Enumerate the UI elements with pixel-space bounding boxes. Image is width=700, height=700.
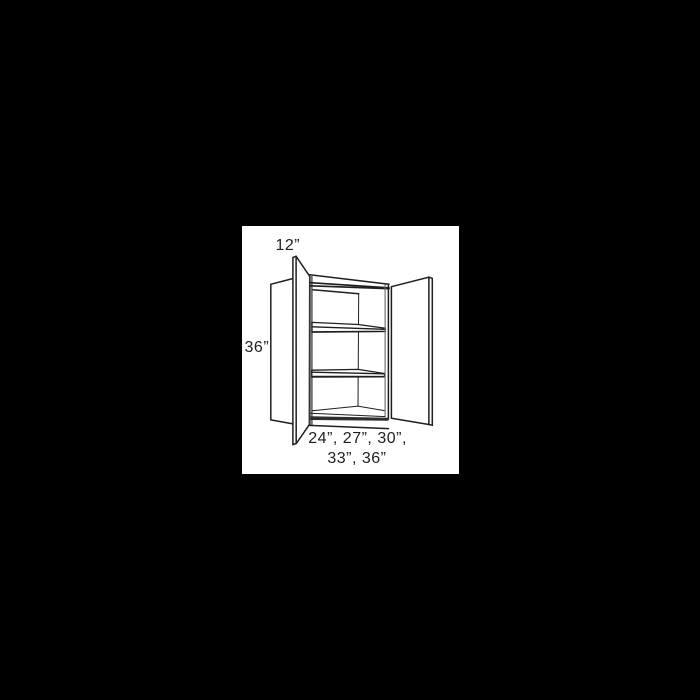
svg-text:24”, 27”, 30”,: 24”, 27”, 30”, <box>308 430 407 447</box>
svg-text:12”: 12” <box>275 237 300 254</box>
svg-text:33”, 36”: 33”, 36” <box>327 450 386 467</box>
svg-text:36”: 36” <box>245 339 270 356</box>
